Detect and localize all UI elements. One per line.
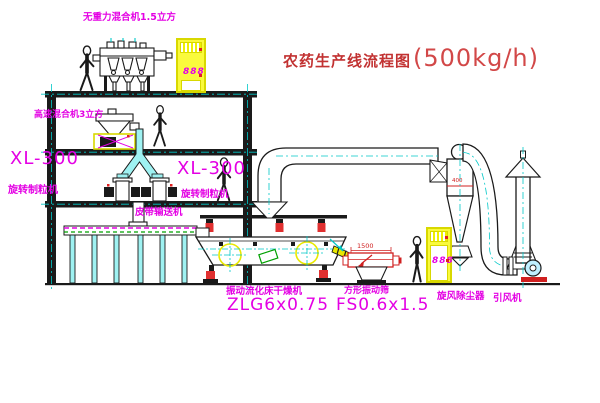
ground-line bbox=[45, 283, 560, 285]
label-zero-gravity-mixer: 无重力混合机1.5立方 bbox=[83, 13, 176, 23]
cad-flow-diagram: 888 888 农药生产线流程图 (500kg/h) 无重力混合机1.5立方 高… bbox=[0, 0, 600, 403]
label-sieve-model: FS0.6x1.5 bbox=[336, 297, 429, 314]
label-granulator-left-model: XL-300 bbox=[10, 150, 79, 168]
dryer-leg-springs bbox=[203, 265, 331, 283]
person-figure bbox=[150, 103, 170, 150]
fan-base bbox=[521, 277, 547, 282]
conveyor-legs bbox=[70, 235, 187, 283]
zero-gravity-mixer bbox=[93, 38, 172, 91]
dimension-cyclone-400: 400 bbox=[452, 179, 463, 185]
cabinet-display: 888 bbox=[432, 257, 454, 266]
diagram-title: 农药生产线流程图 (500kg/h) bbox=[283, 44, 539, 72]
label-granulator-left-name: 旋转制粒机 bbox=[8, 186, 58, 196]
control-cabinet-lower: 888 bbox=[426, 227, 452, 283]
fluid-bed-dryer bbox=[196, 215, 347, 283]
person-figure bbox=[406, 232, 428, 287]
title-text: 农药生产线流程图 bbox=[283, 50, 411, 71]
rotary-granulator-right bbox=[141, 178, 177, 201]
dryer-hanger-springs bbox=[206, 219, 326, 232]
main-duct bbox=[252, 148, 440, 218]
label-cyclone: 旋风除尘器 bbox=[437, 292, 485, 302]
person-figure bbox=[76, 45, 98, 93]
dimension-sieve-1500: 1500 bbox=[357, 243, 374, 250]
label-granulator-right-name: 旋转制粒机 bbox=[181, 190, 229, 200]
label-belt-conveyor: 皮带输送机 bbox=[135, 208, 183, 218]
label-granulator-right-model: XL-300 bbox=[177, 160, 246, 178]
cabinet-door bbox=[181, 80, 201, 91]
label-dryer-model: ZLG6x0.75 bbox=[227, 297, 329, 314]
label-fan: 引风机 bbox=[493, 294, 522, 304]
control-cabinet-upper: 888 bbox=[176, 38, 206, 93]
title-capacity: (500kg/h) bbox=[413, 44, 539, 72]
rotary-granulator-left bbox=[104, 178, 140, 201]
belt-conveyor bbox=[64, 226, 197, 283]
square-vibrating-sieve bbox=[343, 247, 402, 284]
label-high-speed-mixer: 高速混合机3立方 bbox=[34, 111, 103, 120]
